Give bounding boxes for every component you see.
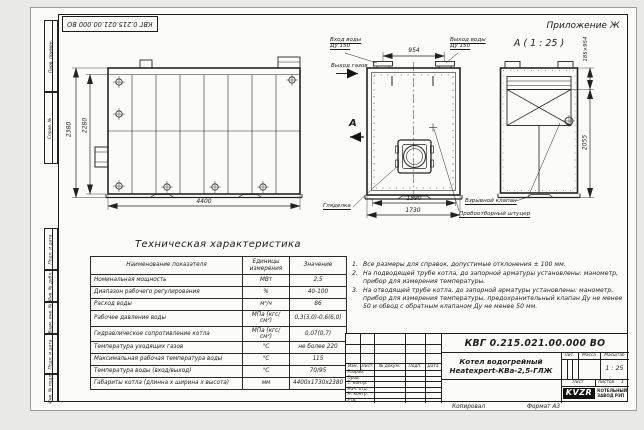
drawing-canvas: Перв. примен. Справ. № Подп. и дата Инв.… [0, 0, 644, 430]
water-inlet-line2: Ду 150 [330, 43, 361, 49]
table-row: Габариты котла (длинна х ширина х высота… [91, 378, 347, 390]
spec-cell-name: Максимальная рабочая температура воды [91, 354, 243, 366]
spec-cell-value: 115 [290, 354, 347, 366]
spec-cell-value: 0,3(3,0)-0,6(6,0) [290, 311, 347, 327]
spec-cell-value: 4400х1730х2380 [290, 378, 347, 390]
spec-cell-unit: °С [243, 366, 290, 378]
water-outlet-label: Выход воды Ду 150 [450, 37, 486, 50]
spec-cell-name: Габариты котла (длинна х ширина х высота… [91, 378, 243, 390]
water-outlet-line2: Ду 150 [450, 43, 486, 49]
title-block: Изм. Лист № докум. Подп. Дата Разраб. Пр… [345, 333, 628, 402]
copied-label: Копировал [452, 404, 485, 410]
dim-side-length: 4400 [184, 199, 224, 206]
company-name: КОТЕЛЬНЫЙ ЗАВОД РЭП [597, 389, 627, 399]
gas-outlet-label: Выход газов [331, 63, 368, 69]
logo-mark: KVZR [563, 388, 595, 399]
tb-sheets-value: 1 [621, 381, 624, 385]
tb-header-podp: Подп. [405, 365, 425, 369]
spec-cell-value: 70/95 [290, 366, 347, 378]
tb-sheet-label: Лист [561, 381, 595, 385]
spec-cell-value: 2,5 [290, 275, 347, 287]
tb-header-data: Дата [425, 365, 441, 369]
spec-header-row: Наименование показателя Единицы измерени… [91, 257, 347, 275]
table-row: Рабочее давление водыМПа (кгс/см²)0,3(3,… [91, 311, 347, 327]
spec-cell-unit: МПа (кгс/см²) [243, 311, 290, 327]
note-item: 3.На отводящей трубе котла, до запорной … [352, 287, 626, 310]
notes-list: 1.Все размеры для справок, допустимые от… [352, 261, 626, 312]
dim-side-height-inner: 2280 [83, 105, 90, 145]
tb-sheets-label: Листов [598, 381, 614, 385]
tb-header-doc: № докум. [374, 365, 405, 369]
section-arrow-letter: А [349, 118, 357, 130]
spec-header-unit: Единицы измерения [243, 257, 290, 275]
manufacturer-logo: KVZR КОТЕЛЬНЫЙ ЗАВОД РЭП [561, 386, 629, 401]
dim-section-height: 2055 [583, 122, 590, 162]
spec-cell-unit: °С [243, 342, 290, 354]
dim-section-opening: 185×954 [583, 29, 589, 69]
format-label: Формат А3 [527, 404, 560, 410]
spec-cell-value: 86 [290, 299, 347, 311]
spec-cell-name: Температура воды (вход/выход) [91, 366, 243, 378]
water-inlet-label: Вход воды Ду 150 [330, 37, 361, 50]
tb-header-list: Лист [360, 365, 374, 369]
note-text: Все размеры для справок, допустимые откл… [363, 261, 566, 269]
tb-product-name: Котел водогрейный Heatexpert-КВа-2,5-ГЛЖ [441, 352, 561, 379]
sampling-fitting-label: Пробоотборный штуцер [459, 211, 530, 217]
tb-sig-utv: Утв. [348, 399, 357, 403]
spec-cell-unit: % [243, 287, 290, 299]
explosion-valve-label: Взрывной клапан [465, 198, 517, 204]
spec-cell-unit: мм [243, 378, 290, 390]
note-text: На подводящей трубе котла, до запорной а… [363, 270, 626, 286]
table-row: Номинальная мощностьМВт2,5 [91, 275, 347, 287]
spec-cell-name: Диапазон рабочего регулирования [91, 287, 243, 299]
spec-header-value: Значение [290, 257, 347, 275]
spec-cell-unit: м³/ч [243, 299, 290, 311]
tb-doc-number: КВГ 0.215.021.00.000 ВО [441, 334, 629, 352]
table-row: Температура воды (вход/выход)°С70/95 [91, 366, 347, 378]
spec-cell-unit: МПа (кгс/см²) [243, 326, 290, 342]
spec-header-name: Наименование показателя [91, 257, 243, 275]
spec-cell-name: Номинальная мощность [91, 275, 243, 287]
tb-header-izm: Изм. [346, 365, 360, 369]
tb-product-name-line2: Heatexpert-КВа-2,5-ГЛЖ [450, 366, 553, 375]
spec-cell-value: не более 220 [290, 342, 347, 354]
tb-scale-value: 1 : 25 [600, 365, 629, 372]
tb-sig-tkontr: Т. контр. [348, 382, 368, 386]
note-number: 1. [352, 261, 363, 269]
dim-side-height-outer: 2380 [67, 109, 74, 149]
sight-glass-label: Гляделка [323, 203, 351, 209]
tb-scale-label: Масштаб [600, 354, 629, 358]
spec-table: Наименование показателя Единицы измерени… [90, 256, 347, 390]
company-line2: ЗАВОД РЭП [597, 394, 627, 399]
spec-cell-name: Расход воды [91, 299, 243, 311]
table-row: Температура уходящих газов°Сне более 220 [91, 342, 347, 354]
dim-front-width-inner: 1590 [394, 196, 434, 203]
dim-front-width-outer: 1730 [393, 208, 433, 215]
note-item: 2.На подводящей трубе котла, до запорной… [352, 270, 626, 286]
spec-table-title: Техническая характеристика [90, 239, 346, 250]
tb-mass-label: Масса [578, 354, 600, 358]
table-row: Диапазон рабочего регулирования%40-100 [91, 287, 347, 299]
table-row: Гидравлическое сопротивление котлаМПа (к… [91, 326, 347, 342]
note-text: На отводящей трубе котла, до запорной ар… [363, 287, 626, 310]
note-number: 3. [352, 287, 363, 310]
tb-sig-nkontr: Н. контр. [348, 393, 369, 397]
note-number: 2. [352, 270, 363, 286]
spec-cell-value: 40-100 [290, 287, 347, 299]
table-row: Расход водым³/ч86 [91, 299, 347, 311]
spec-cell-name: Гидравлическое сопротивление котла [91, 326, 243, 342]
note-item: 1.Все размеры для справок, допустимые от… [352, 261, 626, 269]
tb-product-name-line1: Котел водогрейный [459, 357, 542, 366]
tb-lit-label: Лит. [561, 354, 578, 358]
spec-cell-unit: МВт [243, 275, 290, 287]
section-view-title: А ( 1 : 25 ) [499, 39, 579, 50]
dim-nozzle-spacing: 954 [394, 48, 434, 55]
table-row: Максимальная рабочая температура воды°С1… [91, 354, 347, 366]
tb-sig-razrab: Разраб. [348, 371, 365, 375]
spec-cell-name: Рабочее давление воды [91, 311, 243, 327]
spec-cell-unit: °С [243, 354, 290, 366]
spec-cell-name: Температура уходящих газов [91, 342, 243, 354]
spec-cell-value: 0,07(0,7) [290, 326, 347, 342]
